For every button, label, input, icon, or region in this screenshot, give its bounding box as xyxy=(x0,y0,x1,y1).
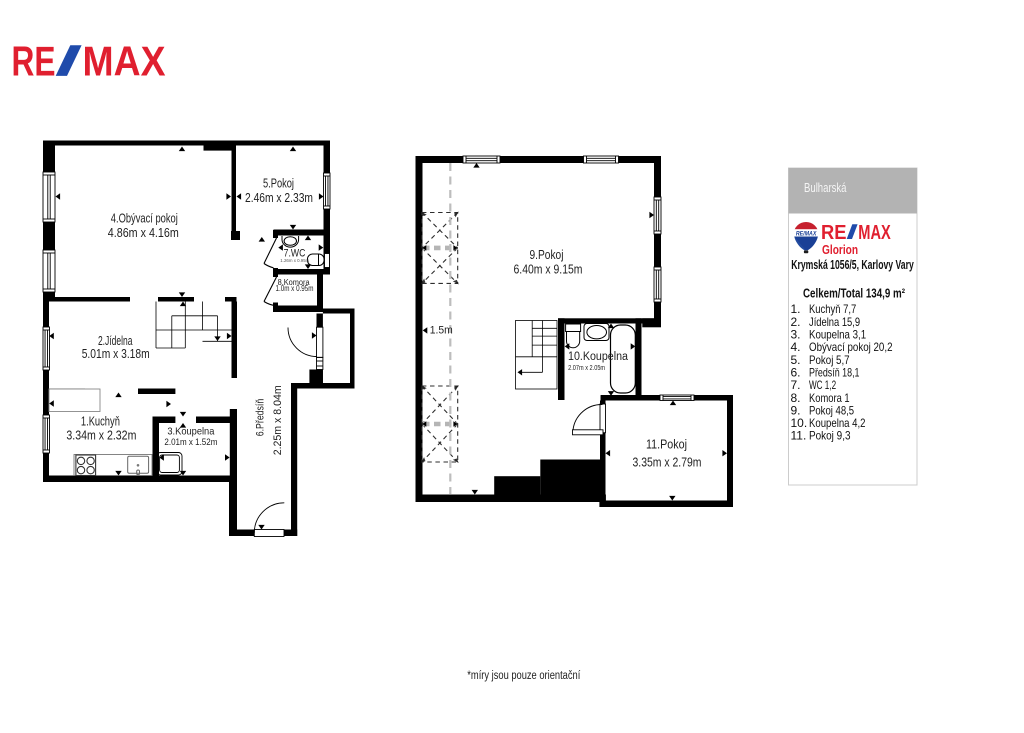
svg-text:11.Pokoj: 11.Pokoj xyxy=(646,436,687,451)
svg-text:3.35m x 2.79m: 3.35m x 2.79m xyxy=(633,455,702,470)
svg-text:*míry jsou pouze orientační: *míry jsou pouze orientační xyxy=(467,670,581,682)
svg-text:2.07m x 2.05m: 2.07m x 2.05m xyxy=(568,365,605,372)
svg-text:Glorion: Glorion xyxy=(822,242,858,257)
svg-text:RE: RE xyxy=(821,222,847,244)
svg-text:2.46m x 2.33m: 2.46m x 2.33m xyxy=(245,190,313,205)
svg-text:5.Pokoj: 5.Pokoj xyxy=(263,175,294,190)
svg-text:4.86m x 4.16m: 4.86m x 4.16m xyxy=(108,225,179,240)
svg-text:RE/MAX: RE/MAX xyxy=(796,230,817,237)
svg-text:1.Kuchyň: 1.Kuchyň xyxy=(81,413,120,428)
svg-text:4.Obývací pokoj: 4.Obývací pokoj xyxy=(111,211,178,226)
svg-text:3.34m x 2.32m: 3.34m x 2.32m xyxy=(66,428,136,443)
svg-text:MAX: MAX xyxy=(858,222,891,244)
svg-text:1.0m x 0.95m: 1.0m x 0.95m xyxy=(276,284,314,293)
svg-text:1.26m x 0.95m: 1.26m x 0.95m xyxy=(280,258,309,264)
svg-text:11.: 11. xyxy=(791,429,807,443)
svg-text:2.25m x 8.04m: 2.25m x 8.04m xyxy=(272,385,284,455)
svg-text:1.5m: 1.5m xyxy=(430,325,453,337)
svg-text:MAX: MAX xyxy=(83,38,166,85)
svg-text:3.Koupelna: 3.Koupelna xyxy=(167,425,214,437)
svg-text:10.Koupelna: 10.Koupelna xyxy=(568,351,629,363)
svg-text:Krymská 1056/5, Karlovy Vary: Krymská 1056/5, Karlovy Vary xyxy=(791,258,914,272)
svg-text:6.Předsíň: 6.Předsíň xyxy=(254,399,266,437)
svg-text:7.WC: 7.WC xyxy=(284,247,306,259)
svg-text:Pokoj 9,3: Pokoj 9,3 xyxy=(809,429,851,443)
svg-text:2.01m x 1.52m: 2.01m x 1.52m xyxy=(164,437,217,448)
svg-text:Celkem/Total 134,9 m²: Celkem/Total 134,9 m² xyxy=(803,287,905,301)
svg-text:Bulharská: Bulharská xyxy=(804,181,847,195)
svg-text:RE: RE xyxy=(12,38,56,85)
svg-text:6.40m x 9.15m: 6.40m x 9.15m xyxy=(514,262,583,277)
svg-text:9.Pokoj: 9.Pokoj xyxy=(530,247,564,262)
svg-text:5.01m x 3.18m: 5.01m x 3.18m xyxy=(82,346,150,361)
